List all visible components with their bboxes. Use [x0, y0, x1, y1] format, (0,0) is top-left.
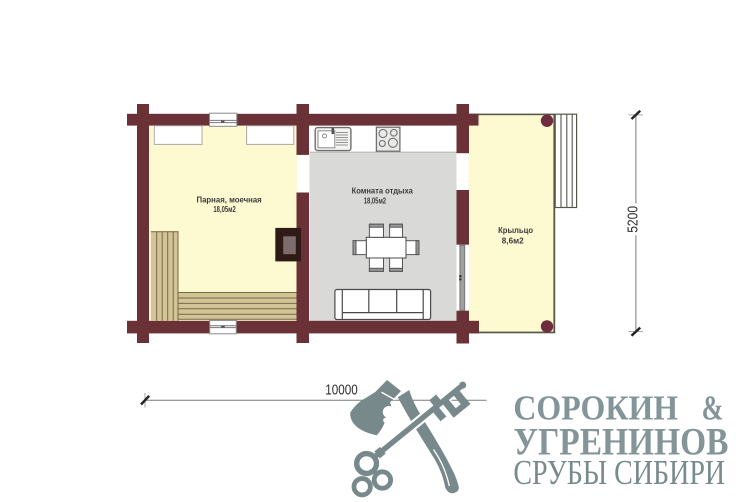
svg-text:Парная, моечная: Парная, моечная [197, 195, 262, 205]
svg-text:18,05м2: 18,05м2 [213, 204, 236, 214]
svg-text:Крыльцо: Крыльцо [498, 225, 533, 235]
svg-text:10000: 10000 [325, 382, 358, 398]
svg-text:СРУБЫ СИБИРИ: СРУБЫ СИБИРИ [513, 453, 725, 492]
svg-text:8,6м2: 8,6м2 [502, 235, 524, 245]
svg-text:Комната отдыха: Комната отдыха [352, 185, 414, 195]
svg-text:18,05м2: 18,05м2 [364, 196, 387, 206]
svg-text:5200: 5200 [626, 206, 642, 233]
